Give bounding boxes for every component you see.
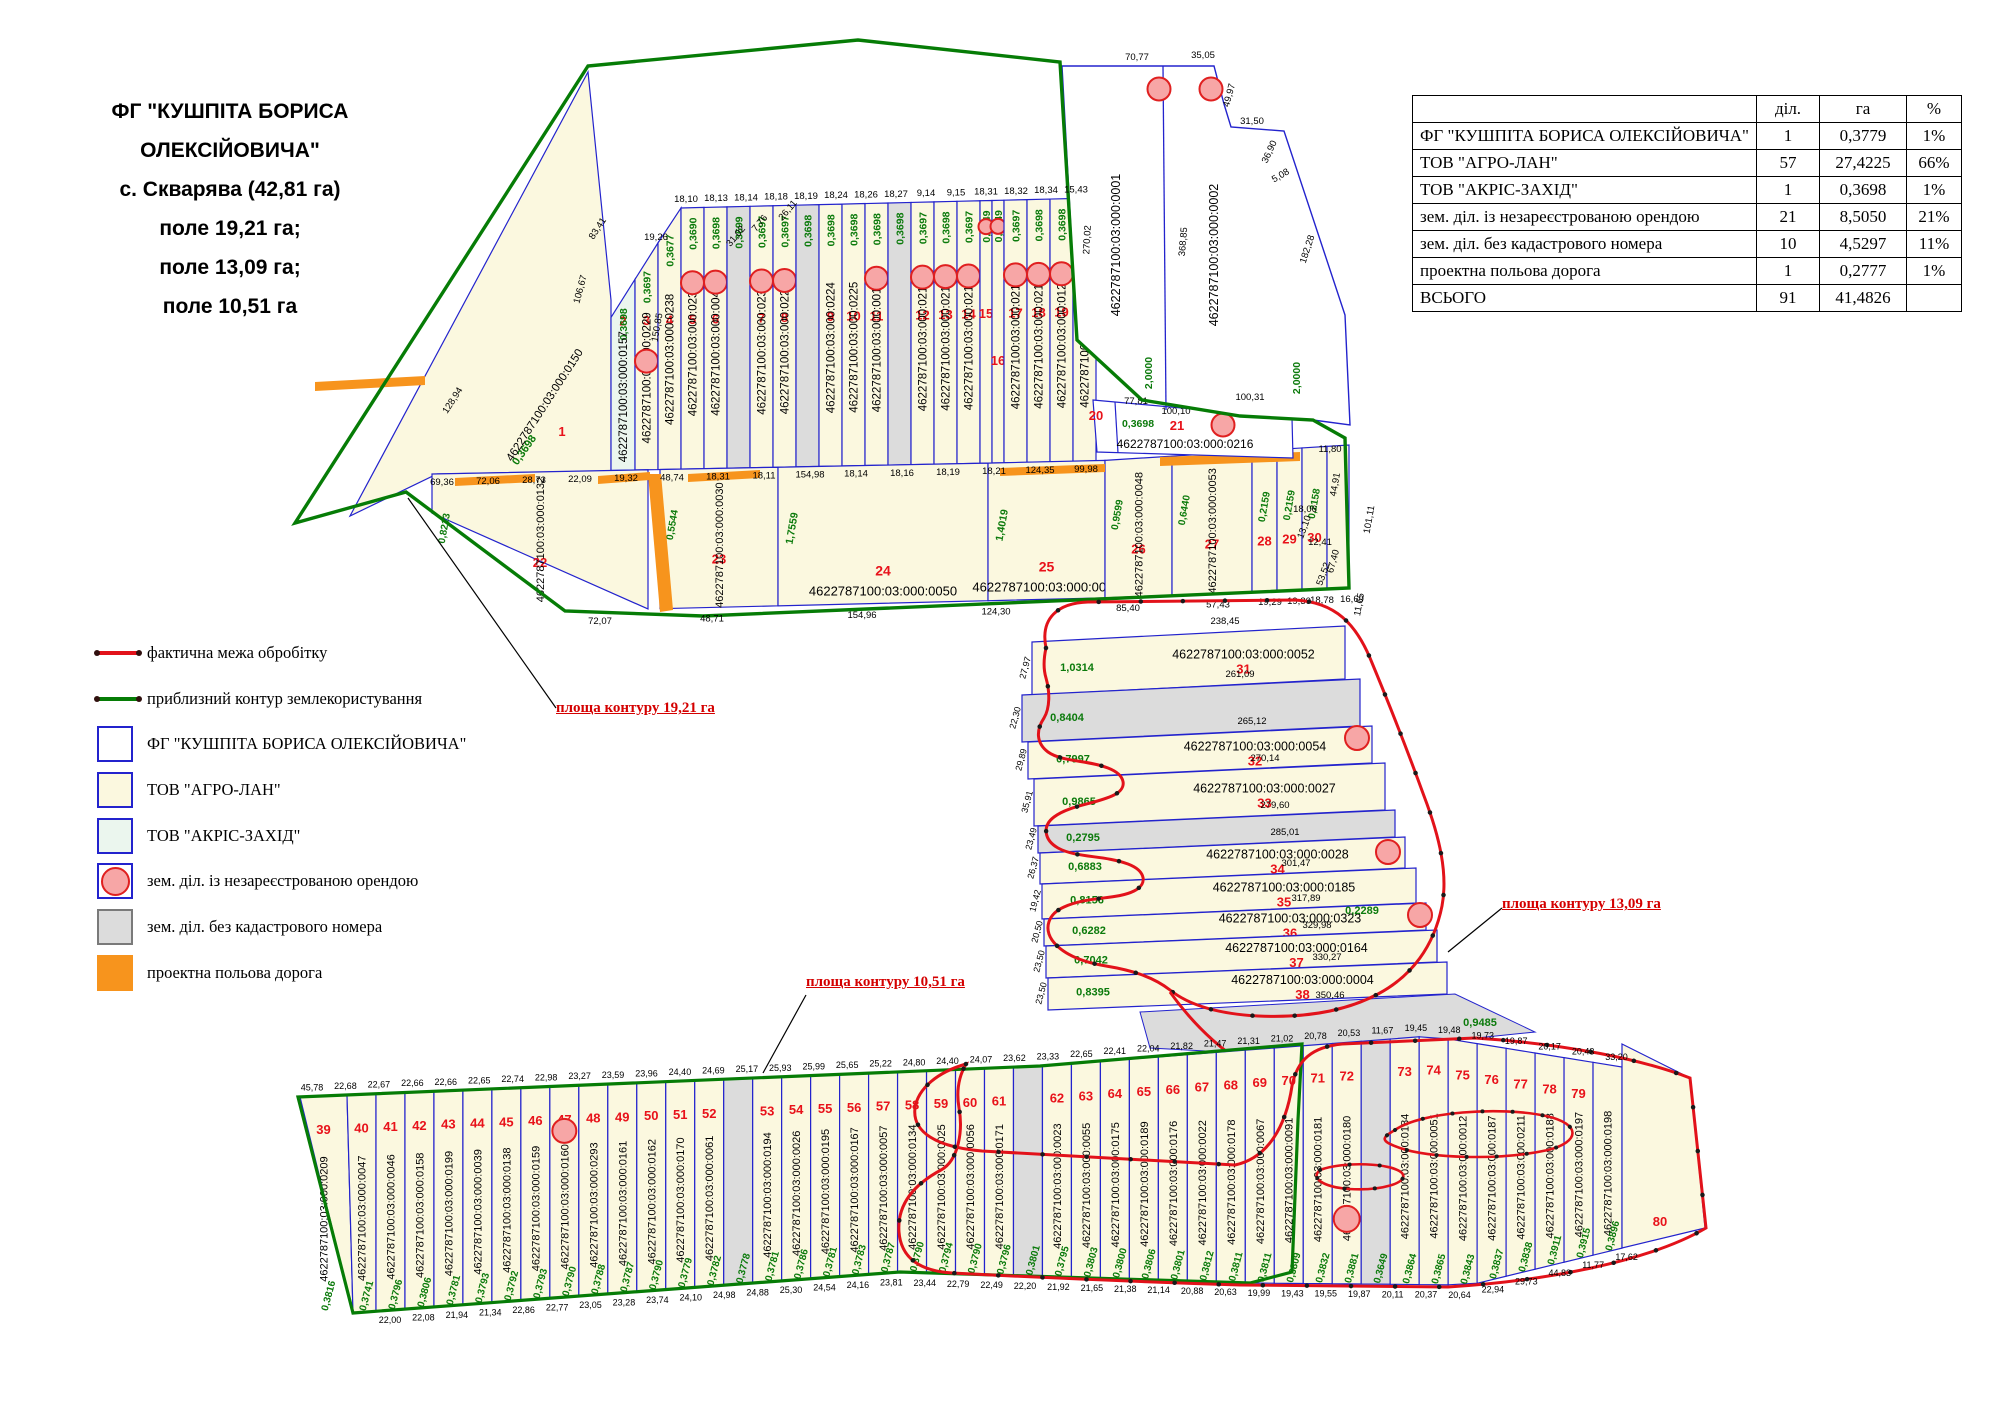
cadastral-number: 4622787100:03:000:0047	[356, 1156, 368, 1281]
cadastral-number: 4622787100:03:000:0323	[1219, 912, 1362, 926]
unregistered-lease-circle	[773, 269, 796, 292]
dim-label: 238,45	[1210, 616, 1239, 627]
cadastral-number: 4622787100:03:000:0198	[1603, 1111, 1615, 1236]
cadastral-number: 4622787100:03:000:0157	[618, 331, 630, 462]
cadastral-number: 4622787100:03:000:0001	[1109, 174, 1123, 317]
cadastral-number: 4622787100:03:000:0048	[1134, 472, 1146, 597]
dim-label: 21,92	[1047, 1282, 1070, 1292]
dim-label: 22,30	[1007, 706, 1022, 730]
parcel-number: 55	[818, 1101, 832, 1116]
parcel-number: 39	[316, 1122, 330, 1137]
dim-label: 23,44	[913, 1278, 936, 1288]
dim-label: 19,42	[1027, 889, 1042, 913]
cadastral-number: 4622787100:03:000:0039	[472, 1149, 484, 1274]
cadastral-number: 4622787100:03:000:0028	[1206, 848, 1349, 862]
parcel-number: 61	[992, 1094, 1006, 1109]
parcel-number: 59	[934, 1096, 948, 1111]
dim-label: 22,00	[379, 1315, 402, 1325]
dim-label: 35,91	[1019, 790, 1034, 814]
cadastral-number: 4622787100:03:000:0067	[1255, 1119, 1267, 1244]
dim-label: 25,65	[836, 1060, 859, 1070]
parcel-number: 53	[760, 1103, 774, 1118]
parcel-area: 0,3698	[1122, 418, 1154, 430]
dim-label: 21,82	[1170, 1041, 1193, 1051]
parcel-number: 40	[354, 1120, 368, 1135]
parcel-number: 52	[702, 1106, 716, 1121]
cadastral-number: 4622787100:03:000:0195	[820, 1129, 832, 1254]
dim-label: 22,65	[468, 1075, 491, 1085]
parcel-number: 43	[441, 1117, 455, 1132]
dim-label: 48,71	[700, 613, 724, 624]
parcel-number: 29	[1282, 532, 1296, 547]
dim-label: 279,60	[1260, 800, 1289, 811]
cadastral-number: 4622787100:03:000:0138	[501, 1147, 513, 1272]
dim-label: 22,98	[535, 1073, 558, 1083]
parcel-area: 0,8404	[1050, 712, 1085, 724]
parcel-number: 63	[1079, 1088, 1093, 1103]
cadastral-number: 4622787100:03:000:0187	[1487, 1115, 1499, 1240]
dim-label: 22,86	[512, 1305, 535, 1315]
dim-label: 24,88	[746, 1288, 769, 1298]
dim-label: 19,45	[1405, 1023, 1428, 1033]
parcel-number: 51	[673, 1107, 687, 1122]
dim-label: 18,10	[674, 194, 698, 205]
unregistered-lease-circle	[704, 271, 727, 294]
cadastral-number: 4622787100:03:000:0170	[675, 1137, 687, 1262]
dim-label: 72,06	[476, 476, 500, 487]
dim-label: 11,80	[1318, 444, 1341, 455]
parcel-number: 74	[1426, 1063, 1441, 1078]
dim-label: 21,94	[446, 1310, 469, 1320]
cadastral-number: 4622787100:03:000:0238	[665, 294, 677, 425]
cadastral-number: 4622787100:03:000:0233	[688, 285, 700, 416]
dim-label: 18,31	[706, 471, 730, 482]
cadastral-number: 4622787100:03:000:0212	[1011, 278, 1023, 409]
parcel-number: 41	[383, 1119, 397, 1134]
parcel-number: 44	[470, 1116, 485, 1131]
dim-label: 45,78	[301, 1082, 324, 1092]
cadastral-number: 4622787100:03:000:0184	[1400, 1114, 1412, 1239]
cadastral-number: 4622787100:03:000:0171	[994, 1124, 1006, 1249]
dim-label: 20,63	[1214, 1287, 1237, 1297]
dim-label: 285,01	[1270, 827, 1299, 838]
parcel-area: 0,3698	[803, 215, 815, 247]
dim-label: 9,15	[947, 187, 966, 198]
dim-label: 19,32	[614, 473, 638, 484]
dim-label: 22,66	[435, 1077, 458, 1087]
dim-label: 23,62	[1003, 1053, 1026, 1063]
dim-label: 18,31	[974, 187, 998, 198]
parcel-number: 72	[1339, 1068, 1353, 1083]
cadastral-number: 4622787100:03:000:0178	[1226, 1119, 1238, 1244]
dim-label: 85,40	[1116, 603, 1140, 614]
parcel-area: 0,3698	[826, 214, 838, 246]
parcel-number: 25	[1039, 558, 1055, 574]
unregistered-lease-circle	[991, 219, 1006, 234]
dim-label: 22,65	[1070, 1049, 1093, 1059]
dim-label: 154,98	[795, 470, 824, 481]
parcel-number: 78	[1542, 1081, 1556, 1096]
dim-label: 33,20	[1605, 1052, 1628, 1062]
parcel-area: 0,3698	[849, 214, 861, 246]
dim-label: 18,18	[764, 192, 788, 203]
cadastral-number: 4622787100:03:000:0122	[1057, 277, 1069, 408]
dim-label: 24,10	[680, 1293, 703, 1303]
cadastral-number: 4622787100:03:000:0160	[559, 1144, 571, 1269]
cadastral-number: 4622787100:03:000:0132	[535, 477, 547, 602]
dim-label: 23,50	[1031, 949, 1046, 973]
dim-label: 154,96	[847, 610, 876, 621]
dim-label: 261,09	[1225, 669, 1254, 680]
dim-label: 20,37	[1415, 1290, 1438, 1300]
dim-label: 20,64	[1448, 1290, 1471, 1300]
dim-label: 301,47	[1281, 858, 1310, 869]
dim-label: 25,30	[780, 1285, 803, 1295]
dim-label: 31,50	[1240, 116, 1264, 127]
page-canvas: ФГ "КУШПІТА БОРИСА ОЛЕКСІЙОВИЧА" с. Сква…	[0, 0, 2000, 1414]
contour-area-label-13-09: площа контуру 13,09 га	[1502, 896, 1661, 913]
parcel-area: 2,0000	[1143, 357, 1155, 389]
dim-label: 329,98	[1302, 920, 1331, 931]
parcel-area: 0,9485	[1463, 1017, 1497, 1029]
dim-label: 317,89	[1291, 893, 1320, 904]
unregistered-lease-circle	[552, 1119, 576, 1143]
dim-label: 22,94	[1482, 1284, 1505, 1294]
dim-label: 21,31	[1237, 1036, 1260, 1046]
parcel-number: 68	[1224, 1077, 1238, 1092]
unregistered-lease-circle	[1345, 726, 1369, 750]
dim-label: 23,33	[1037, 1051, 1060, 1061]
cadastral-map: 10,36984622787100:03:000:015020,36984622…	[0, 0, 2000, 1414]
dim-label: 22,66	[401, 1078, 424, 1088]
unregistered-lease-circle	[865, 267, 888, 290]
dim-label: 24,16	[847, 1280, 870, 1290]
parcel-number: 77	[1513, 1077, 1527, 1092]
dim-label: 330,27	[1312, 952, 1341, 963]
cadastral-number: 4622787100:03:000:0056	[965, 1124, 977, 1249]
dim-label: 21,34	[479, 1308, 502, 1318]
unregistered-lease-circle	[1148, 78, 1171, 101]
dim-label: 21,14	[1147, 1285, 1170, 1295]
dim-label: 26,37	[1025, 856, 1040, 880]
dim-label: 23,28	[613, 1298, 636, 1308]
parcel-number: 60	[963, 1095, 977, 1110]
dim-label: 49,97	[1221, 82, 1238, 108]
dim-label: 124,35	[1025, 465, 1054, 476]
dim-label: 19,87	[1505, 1036, 1528, 1046]
parcel-number: 38	[1295, 987, 1309, 1002]
cadastral-number: 4622787100:03:000:0194	[762, 1132, 774, 1257]
dim-label: 100,31	[1235, 392, 1264, 403]
cadastral-number: 4622787100:03:000:0218	[941, 280, 953, 411]
unregistered-lease-circle	[1408, 903, 1432, 927]
parcel-number: 49	[615, 1109, 629, 1124]
dim-label: 24,98	[713, 1290, 736, 1300]
cadastral-number: 4622787100:03:000:0159	[530, 1146, 542, 1271]
dim-label: 28,73	[522, 475, 546, 486]
parcel-number: 46	[528, 1113, 542, 1128]
parcel-number: 28	[1257, 533, 1271, 548]
dim-label: 19,87	[1348, 1289, 1371, 1299]
dim-label: 20,53	[1338, 1028, 1361, 1038]
dim-label: 20,50	[1029, 920, 1044, 944]
dim-label: 19,26	[644, 232, 668, 243]
cadastral-number: 4622787100:03:000:0185	[1213, 881, 1356, 895]
parcel-number: 69	[1253, 1075, 1267, 1090]
parcel-number: 21	[1170, 418, 1184, 433]
cadastral-number: 4622787100:03:000:0052	[1172, 648, 1315, 662]
cadastral-number: 4622787100:03:000:0197	[1574, 1112, 1586, 1237]
cadastral-number: 4622787100:03:000:0167	[849, 1127, 861, 1252]
unregistered-lease-circle	[1200, 78, 1223, 101]
cadastral-number: 4622787100:03:000:0023	[1052, 1123, 1064, 1248]
parcel-area: 0,3698	[941, 211, 953, 243]
dim-label: 18,32	[1004, 186, 1028, 197]
dim-label: 25,99	[802, 1061, 825, 1071]
parcel-number: 71	[1311, 1071, 1325, 1086]
parcel-area: 0,6282	[1072, 925, 1106, 937]
dim-label: 101,11	[1362, 505, 1378, 535]
cadastral-number: 4622787100:03:000:0224	[826, 282, 838, 414]
dim-label: 23,50	[1033, 981, 1048, 1005]
dim-label: 25,17	[736, 1064, 759, 1074]
cadastral-number: 4622787100:03:000:0061	[704, 1136, 716, 1261]
parcel-area: 0,3698	[1034, 209, 1046, 241]
label-leader-line	[763, 995, 806, 1073]
unregistered-lease-circle	[1212, 414, 1235, 437]
parcel-number: 56	[847, 1100, 861, 1115]
dim-label: 22,09	[568, 474, 592, 485]
dim-label: 72,07	[588, 616, 612, 627]
dim-label: 18,21	[982, 466, 1006, 477]
cadastral-number: 4622787100:03:000:0175	[1110, 1122, 1122, 1247]
unregistered-lease-circle	[1027, 263, 1050, 286]
parcel-number: 15	[979, 306, 993, 321]
unregistered-lease-circle	[1376, 840, 1400, 864]
cadastral-number: 4622787100:03:000:0055	[1081, 1123, 1093, 1248]
parcel-number: 64	[1108, 1086, 1123, 1101]
dim-label: 70,77	[1125, 52, 1149, 63]
cadastral-number: 4622787100:03:000:0002	[1207, 184, 1221, 327]
parcel-strip	[1361, 1039, 1390, 1284]
cadastral-number: 4622787100:03:000:0158	[414, 1153, 426, 1278]
dim-label: 18,06	[1293, 504, 1317, 515]
parcel-number: 65	[1137, 1084, 1151, 1099]
unregistered-lease-circle	[750, 270, 773, 293]
dim-label: 24,69	[702, 1066, 725, 1076]
cadastral-number: 4622787100:03:000:0057	[878, 1126, 890, 1251]
cadastral-number: 4622787100:03:000:0013	[872, 281, 884, 412]
cadastral-number: 4622787100:03:000:0293	[588, 1142, 600, 1267]
dim-label: 22,67	[368, 1080, 391, 1090]
dim-label: 22,74	[501, 1074, 524, 1084]
cadastral-number: 4622787100:03:000:0211	[1516, 1115, 1528, 1240]
cadastral-number: 4622787100:03:000:0045	[711, 285, 723, 416]
dim-label: 18,34	[1034, 185, 1058, 196]
parcel-number: 1	[558, 424, 565, 439]
parcel-number: 75	[1455, 1067, 1469, 1082]
dim-label: 29,89	[1013, 748, 1028, 772]
dim-label: 35,05	[1191, 50, 1215, 61]
cadastral-number: 4622787100:03:000:0004	[1231, 973, 1374, 987]
dim-label: 124,30	[981, 607, 1010, 618]
dim-label: 22,04	[1137, 1044, 1160, 1054]
unregistered-lease-circle	[1334, 1206, 1360, 1232]
parcel-area: 0,2795	[1066, 832, 1100, 844]
unregistered-lease-circle	[1004, 263, 1027, 286]
dim-label: 22,41	[1104, 1046, 1127, 1056]
parcel-strip	[350, 72, 611, 516]
parcel-strip	[1013, 1066, 1042, 1277]
parcel-area: 0,8395	[1076, 987, 1110, 999]
unregistered-lease-circle	[911, 266, 934, 289]
parcel-number: 48	[586, 1111, 600, 1126]
dim-label: 18,13	[704, 193, 728, 204]
dim-label: 18,19	[794, 191, 818, 202]
cadastral-number: 4622787100:03:000:0012	[1458, 1116, 1470, 1241]
cadastral-number: 4622787100:03:000:0053	[1207, 468, 1219, 593]
dim-label: 17,62	[1615, 1252, 1638, 1262]
dim-label: 20,88	[1181, 1286, 1204, 1296]
cadastral-number: 4622787100:03:000:0049	[972, 579, 1120, 594]
parcel-number: 50	[644, 1108, 658, 1123]
dim-label: 18,14	[844, 469, 868, 480]
dim-label: 44,83	[1548, 1268, 1571, 1278]
dim-label: 18,27	[884, 189, 908, 200]
cadastral-number: 4622787100:03:000:0231	[757, 284, 769, 415]
parcel-number: 67	[1195, 1080, 1209, 1095]
cadastral-number: 4622787100:03:000:0222	[780, 283, 792, 414]
dim-label: 21,47	[1204, 1039, 1227, 1049]
parcel-number: 16	[991, 353, 1005, 368]
parcel-area: 1,0314	[1060, 662, 1095, 674]
cadastral-number: 4622787100:03:000:0050	[809, 583, 957, 598]
cadastral-number: 4622787100:03:000:0022	[1197, 1120, 1209, 1245]
cadastral-number: 4622787100:03:000:0219	[964, 279, 976, 410]
dim-label: 20,11	[1382, 1289, 1404, 1299]
dim-label: 18,26	[854, 190, 878, 201]
dim-label: 23,74	[646, 1295, 669, 1305]
dim-label: 24,54	[813, 1283, 836, 1293]
cadastral-number: 4622787100:03:000:0176	[1168, 1121, 1180, 1246]
dim-label: 24,40	[669, 1067, 692, 1077]
dim-label: 20,17	[1538, 1041, 1561, 1051]
cadastral-number: 4622787100:03:000:0217	[918, 280, 930, 411]
unregistered-lease-circle	[957, 265, 980, 288]
cadastral-number: 4622787100:03:000:0213	[1034, 278, 1046, 409]
unregistered-lease-circle	[681, 271, 704, 294]
dim-label: 18,19	[936, 467, 960, 478]
dim-label: 22,08	[412, 1313, 435, 1323]
parcel-number: 57	[876, 1099, 890, 1114]
unregistered-lease-circle	[1050, 262, 1073, 285]
cadastral-number: 4622787100:03:000:0189	[1139, 1121, 1151, 1246]
parcel-number: 66	[1166, 1082, 1180, 1097]
dim-label: 29,73	[1515, 1276, 1538, 1286]
dim-label: 265,12	[1237, 716, 1266, 727]
dim-label: 23,96	[635, 1068, 658, 1078]
dim-label: 22,49	[980, 1280, 1003, 1290]
dim-label: 99,98	[1074, 464, 1098, 475]
dim-label: 19,73	[1471, 1031, 1494, 1041]
parcel-number: 20	[1089, 408, 1103, 423]
unregistered-lease-circle	[934, 265, 957, 288]
parcel-number: 73	[1397, 1064, 1411, 1079]
parcel-area: 0,3816	[320, 1279, 339, 1312]
parcel-number: 62	[1050, 1091, 1064, 1106]
dim-label: 270,14	[1250, 753, 1279, 764]
dim-label: 20,43	[1572, 1047, 1595, 1057]
dim-label: 69,36	[430, 477, 454, 488]
dim-label: 12,41	[1308, 537, 1332, 548]
parcel-area: 0,3697	[642, 271, 654, 303]
dim-label: 24,80	[903, 1057, 926, 1067]
dim-label: 23,59	[602, 1070, 625, 1080]
cadastral-number: 4622787100:03:000:0164	[1225, 941, 1368, 955]
dim-label: 15,43	[1064, 184, 1088, 195]
projected-field-road	[315, 376, 425, 391]
dim-label: 19,99	[1248, 1288, 1271, 1298]
dim-label: 9,14	[917, 188, 936, 199]
dim-label: 21,02	[1271, 1033, 1294, 1043]
dim-label: 25,22	[869, 1059, 892, 1069]
cadastral-number: 4622787100:03:000:0051	[1429, 1113, 1441, 1238]
dim-label: 19,48	[1438, 1025, 1461, 1035]
dim-label: 22,77	[546, 1303, 569, 1313]
parcel-number: 24	[875, 562, 891, 578]
parcel-number: 42	[412, 1118, 426, 1133]
parcel-number: 79	[1571, 1086, 1585, 1101]
parcel-area: 0,3698	[895, 212, 907, 244]
dim-label: 24,07	[970, 1054, 993, 1064]
parcel-area: 0,3698	[711, 217, 723, 249]
dim-label: 18,24	[824, 190, 848, 201]
dim-label: 23,81	[880, 1278, 903, 1288]
dim-label: 11,77	[1582, 1260, 1604, 1270]
parcel-area: 0,3698	[872, 213, 884, 245]
parcel-area: 0,3690	[688, 217, 700, 249]
dim-label: 18,16	[890, 468, 914, 479]
dim-label: 11,67	[1371, 1026, 1393, 1036]
dim-label: 23,27	[568, 1071, 591, 1081]
dim-label: 20,78	[1304, 1031, 1327, 1041]
cadastral-number: 4622787100:03:000:0188	[1545, 1113, 1557, 1238]
dim-label: 48,74	[660, 472, 684, 483]
dim-label: 270,02	[1081, 225, 1094, 255]
label-leader-line	[1448, 908, 1502, 952]
dim-label: 21,65	[1081, 1283, 1104, 1293]
dim-label: 350,46	[1315, 990, 1344, 1001]
parcel-number: 80	[1653, 1214, 1667, 1229]
cadastral-number: 4622787100:03:000:0027	[1193, 782, 1336, 796]
parcel-number: 54	[789, 1102, 804, 1117]
dim-label: 25,93	[769, 1063, 792, 1073]
dim-label: 22,68	[334, 1081, 357, 1091]
dim-label: 21,38	[1114, 1284, 1137, 1294]
cadastral-number: 4622787100:03:000:0216	[1117, 437, 1254, 451]
parcel-area: 0,2289	[1345, 905, 1379, 917]
contour-area-label-19-21: площа контуру 19,21 га	[556, 700, 715, 717]
dim-label: 18,14	[734, 192, 758, 203]
dim-label: 23,49	[1023, 827, 1038, 851]
parcel-area: 2,0000	[1291, 362, 1303, 394]
parcel-area: 0,3697	[918, 212, 930, 244]
dim-label: 19,43	[1281, 1288, 1304, 1298]
cadastral-number: 4622787100:03:000:0030	[714, 482, 726, 607]
parcel-number: 76	[1484, 1072, 1498, 1087]
dim-label: 27,97	[1017, 656, 1032, 680]
parcel-number: 35	[1277, 895, 1291, 910]
